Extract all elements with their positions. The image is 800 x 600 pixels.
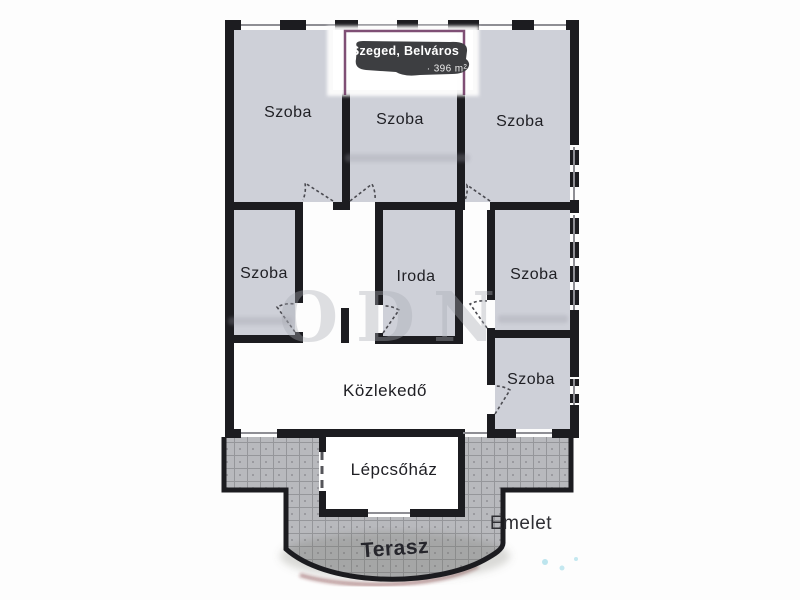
faint-watermark-strip	[345, 154, 470, 162]
room-label-top-right: Szoba	[496, 113, 544, 131]
room-label-top-middle: Szoba	[376, 111, 424, 129]
stairwell-label: Lépcsőház	[351, 460, 438, 480]
terrace-label: Terasz	[360, 535, 429, 564]
room-label-top-left: Szoba	[264, 104, 312, 122]
room-label-mid-left: Szoba	[240, 265, 288, 283]
room-label-lower-right: Szoba	[507, 371, 555, 389]
location-badge	[327, 26, 479, 96]
floor-label: Emelet	[490, 513, 552, 535]
room-label-mid-right: Szoba	[510, 266, 558, 284]
agency-watermark: ODN	[279, 278, 513, 358]
floorplan-page: ODN Szeged, Belváros · 396 m² Szoba Szob…	[0, 0, 800, 600]
hallway-label: Közlekedő	[343, 381, 427, 401]
badge-location-label: Szeged, Belváros	[351, 44, 459, 58]
badge-area-label: · 396 m²	[427, 64, 467, 75]
room-label-office: Iroda	[397, 268, 436, 286]
